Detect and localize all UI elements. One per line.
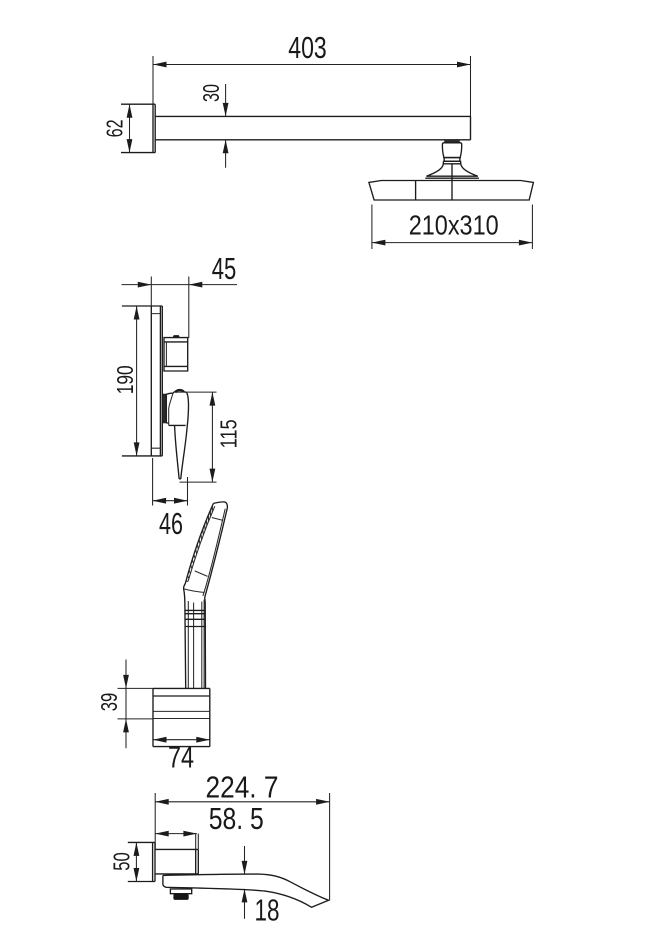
svg-text:50: 50: [108, 852, 134, 871]
svg-text:403: 403: [288, 30, 327, 65]
svg-text:45: 45: [212, 251, 237, 286]
svg-text:62: 62: [102, 119, 128, 137]
svg-text:115: 115: [216, 419, 242, 448]
svg-text:39: 39: [96, 693, 122, 712]
svg-text:30: 30: [198, 84, 224, 102]
svg-text:18: 18: [255, 893, 280, 928]
svg-text:190: 190: [112, 365, 138, 394]
svg-text:224. 7: 224. 7: [206, 770, 279, 805]
svg-text:74: 74: [168, 740, 194, 775]
svg-text:46: 46: [159, 506, 183, 541]
svg-text:58. 5: 58. 5: [209, 801, 264, 836]
svg-text:210x310: 210x310: [409, 210, 499, 241]
